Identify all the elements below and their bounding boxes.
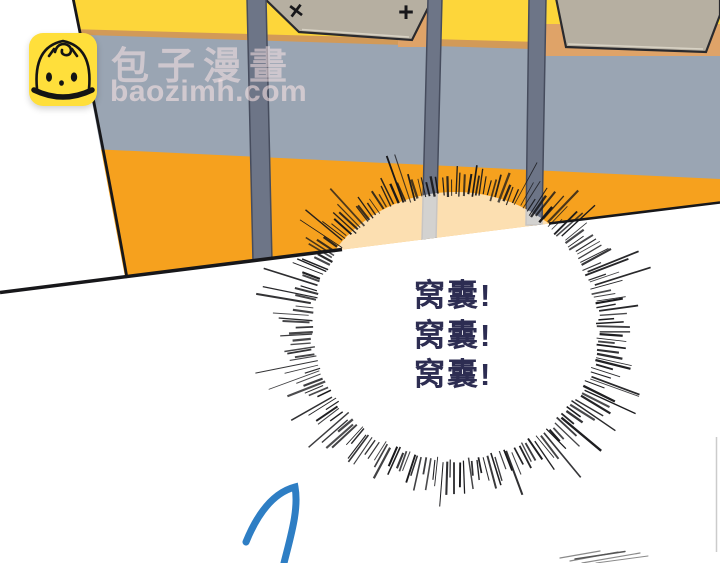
shout-text-block: 窝囊! 窝囊! 窝囊! [414,276,492,395]
shout-line-3: 窝囊! [414,355,492,395]
baozi-bun-icon [29,33,97,106]
blue-brushstroke [246,487,296,563]
pencil-hatch-mark [560,551,648,563]
watermark-site-url: baozimh.com [110,75,307,109]
shout-line-2: 窝囊! [414,316,492,356]
plus-mark-icon: + [398,0,414,27]
comic-page-art: × + [0,0,720,563]
shout-line-1: 窝囊! [414,276,492,316]
